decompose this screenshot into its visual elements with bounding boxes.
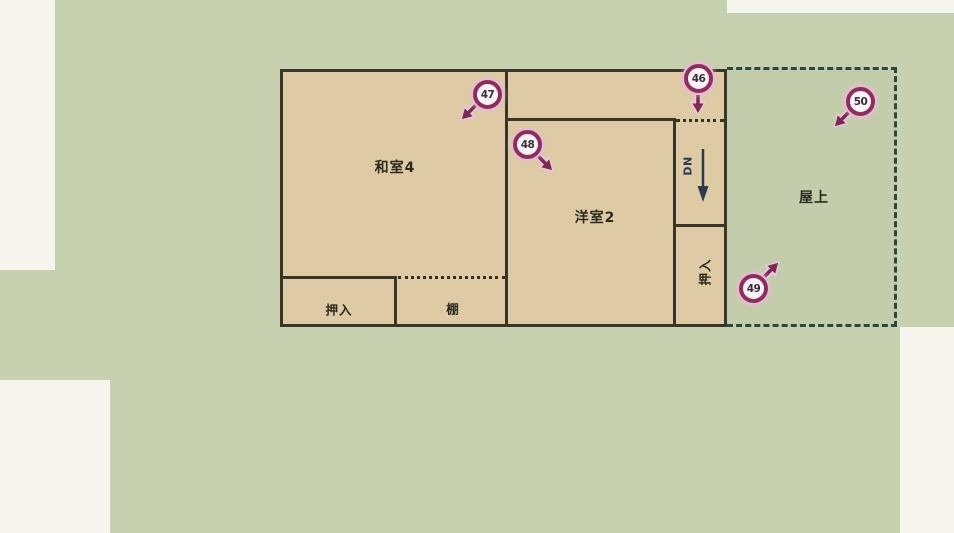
marker-number: 48 — [521, 139, 535, 151]
site-area — [0, 270, 110, 380]
building-outline: 和室4 洋室2 押入 棚 押入 DN — [280, 69, 727, 327]
wall — [394, 276, 397, 324]
photo-marker-47[interactable]: 47 — [473, 80, 502, 109]
closet-left-label: 押入 — [325, 300, 352, 319]
stairs-down-arrow-icon — [695, 148, 711, 204]
marker-number: 50 — [854, 96, 868, 108]
dotted-partition — [398, 276, 505, 279]
photo-marker-50[interactable]: 50 — [846, 87, 875, 116]
rooftop-label: 屋上 — [799, 187, 829, 207]
stairs-dn-label: DN — [682, 156, 695, 175]
photo-marker-49[interactable]: 49 — [739, 274, 768, 303]
wall — [505, 72, 508, 324]
photo-marker-48[interactable]: 48 — [513, 130, 542, 159]
marker-number: 47 — [481, 89, 495, 101]
marker-number: 49 — [747, 283, 761, 295]
room-yoshitsu2-label: 洋室2 — [575, 207, 616, 227]
wall — [505, 118, 675, 121]
room-washitsu4-label: 和室4 — [375, 157, 416, 177]
shelf-label: 棚 — [446, 299, 460, 318]
closet-right-label: 押入 — [695, 258, 714, 285]
wall — [673, 224, 724, 227]
wall — [673, 118, 676, 324]
marker-number: 46 — [692, 73, 706, 85]
dotted-partition — [676, 119, 724, 122]
photo-marker-46[interactable]: 46 — [684, 64, 713, 93]
marker-arrow-down-icon — [686, 91, 710, 115]
floor-plan-scene: 屋上 和室4 洋室2 押入 棚 押入 DN 46 — [0, 0, 954, 533]
site-area — [110, 327, 900, 533]
wall — [283, 276, 396, 279]
